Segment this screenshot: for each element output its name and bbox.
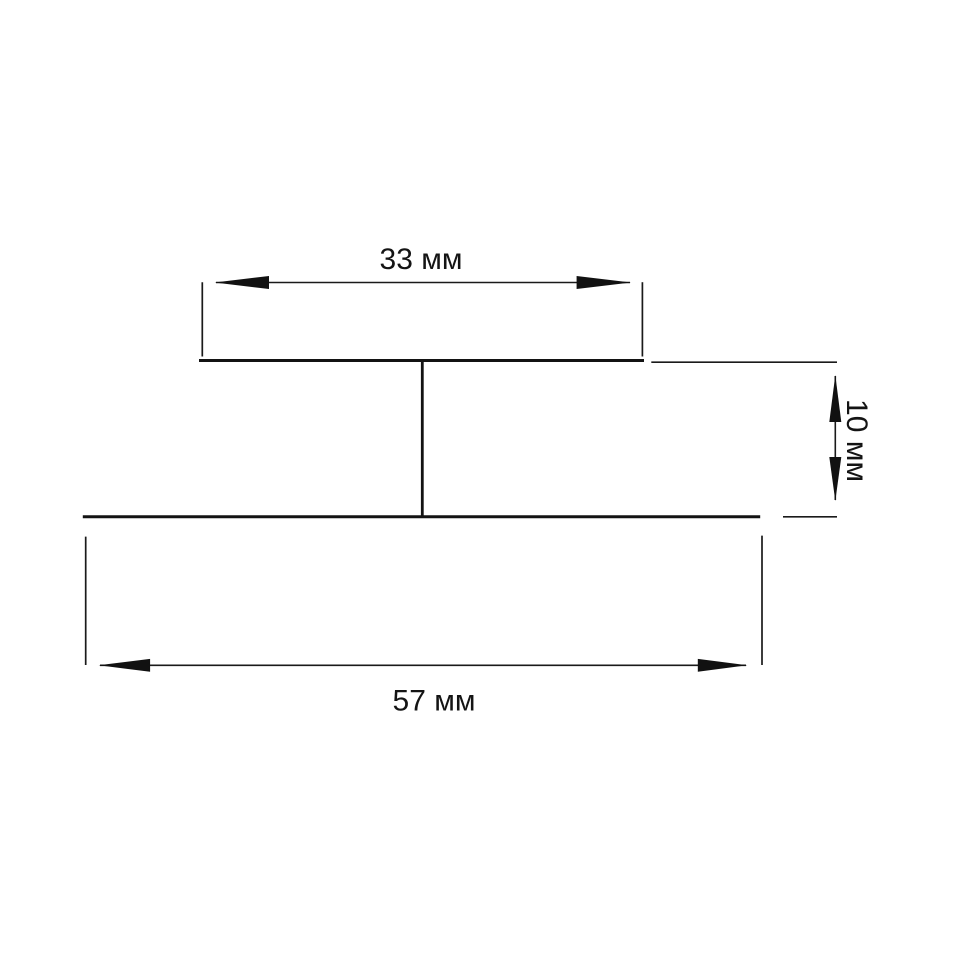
svg-text:57 мм: 57 мм	[393, 685, 476, 718]
svg-text:33 мм: 33 мм	[380, 243, 463, 276]
svg-text:10 мм: 10 мм	[840, 399, 873, 482]
